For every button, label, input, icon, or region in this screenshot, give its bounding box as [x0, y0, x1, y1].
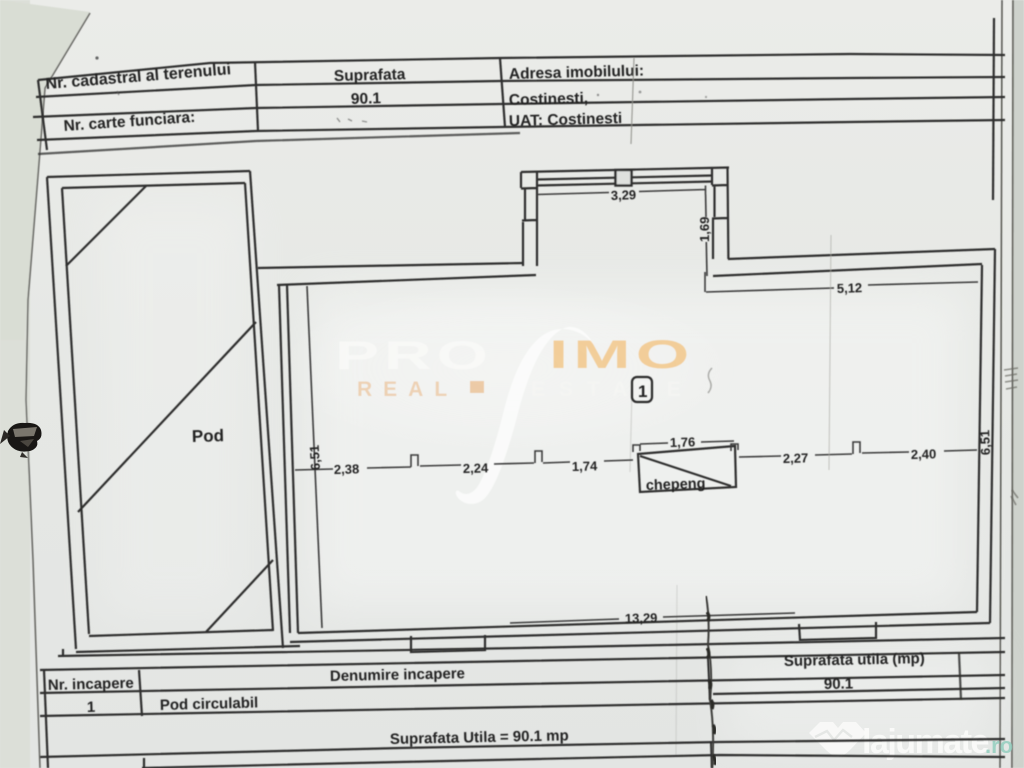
- svg-text:90.1: 90.1: [824, 675, 854, 693]
- svg-text:Suprafata utila (mp): Suprafata utila (mp): [784, 650, 925, 670]
- svg-text:Denumire incapere: Denumire incapere: [330, 665, 465, 685]
- svg-text:2,38: 2,38: [334, 461, 360, 477]
- svg-text:2,27: 2,27: [783, 450, 809, 466]
- svg-text:chepeng: chepeng: [646, 476, 706, 494]
- svg-text:.ro: .ro: [985, 733, 1013, 758]
- svg-text:1,69: 1,69: [697, 217, 712, 242]
- svg-text:IMO: IMO: [549, 332, 694, 377]
- svg-text:1,76: 1,76: [670, 434, 696, 450]
- svg-text:ESTATE: ESTATE: [531, 378, 695, 401]
- svg-text:1: 1: [638, 382, 647, 401]
- svg-text:Pod: Pod: [192, 426, 225, 446]
- svg-text:2,40: 2,40: [911, 446, 937, 462]
- svg-text:Costinesti,: Costinesti,: [509, 90, 589, 109]
- svg-text:90.1: 90.1: [351, 90, 382, 108]
- svg-text:Adresa imobilului:: Adresa imobilului:: [509, 62, 645, 83]
- svg-text:1: 1: [87, 699, 96, 716]
- svg-text:3,29: 3,29: [611, 187, 637, 203]
- svg-text:UAT: Costinesti: UAT: Costinesti: [509, 110, 623, 130]
- svg-text:13,29: 13,29: [625, 610, 658, 626]
- svg-text:5,12: 5,12: [837, 280, 863, 296]
- svg-text:Nr. incapere: Nr. incapere: [48, 675, 134, 694]
- svg-text:REAL: REAL: [357, 378, 458, 401]
- svg-text:Suprafata: Suprafata: [334, 66, 406, 85]
- svg-text:PRO: PRO: [335, 333, 493, 378]
- svg-text:Pod circulabil: Pod circulabil: [160, 694, 259, 714]
- svg-text:2,24: 2,24: [463, 460, 489, 476]
- svg-text:1,74: 1,74: [572, 458, 598, 474]
- svg-text:6,51: 6,51: [307, 445, 323, 471]
- svg-text:6,51: 6,51: [977, 430, 993, 456]
